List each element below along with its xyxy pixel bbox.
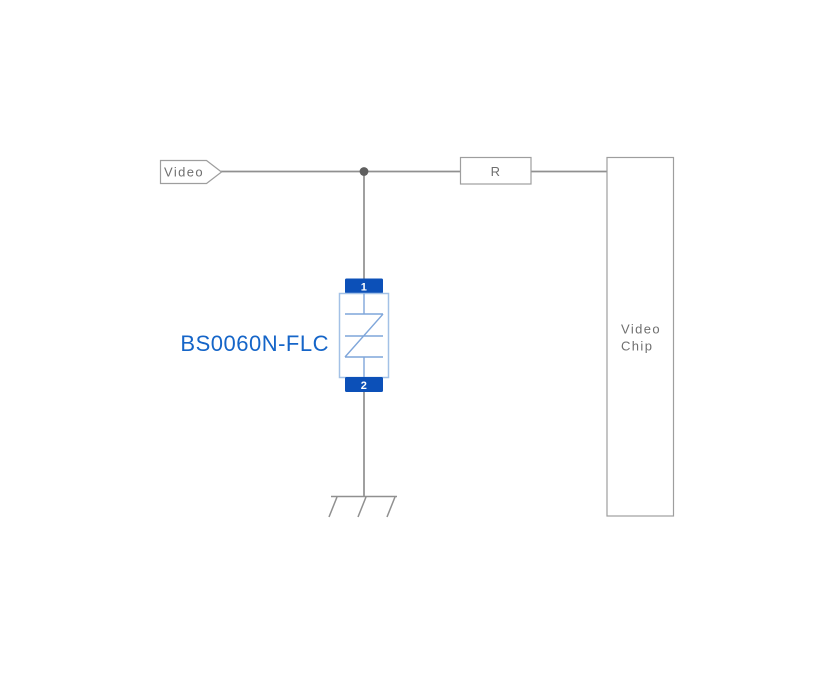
junction-dot — [360, 167, 369, 176]
resistor: R — [461, 158, 532, 185]
resistor-label: R — [491, 164, 502, 179]
ground-symbol — [329, 497, 397, 518]
video-chip-label-line1: Video — [621, 322, 661, 337]
esd-protection-device: 1 2 BS0060N-FLC — [180, 279, 388, 392]
part-number-label: BS0060N-FLC — [180, 331, 329, 356]
video-net-flag: Video — [161, 161, 222, 184]
ground-hatch-right — [387, 497, 395, 517]
video-net-label: Video — [164, 165, 204, 180]
ground-hatch-left — [329, 497, 337, 517]
video-chip-box — [607, 158, 674, 517]
ground-hatch-middle — [358, 497, 366, 517]
pin2-label: 2 — [361, 380, 368, 392]
video-chip-label-line2: Chip — [621, 339, 653, 354]
circuit-diagram: Video R Video Chip 1 2 BS0060N-FLC — [0, 0, 832, 675]
pin1-label: 1 — [361, 282, 368, 294]
schematic-canvas: Video R Video Chip 1 2 BS0060N-FLC — [0, 0, 832, 675]
video-chip: Video Chip — [607, 158, 674, 517]
